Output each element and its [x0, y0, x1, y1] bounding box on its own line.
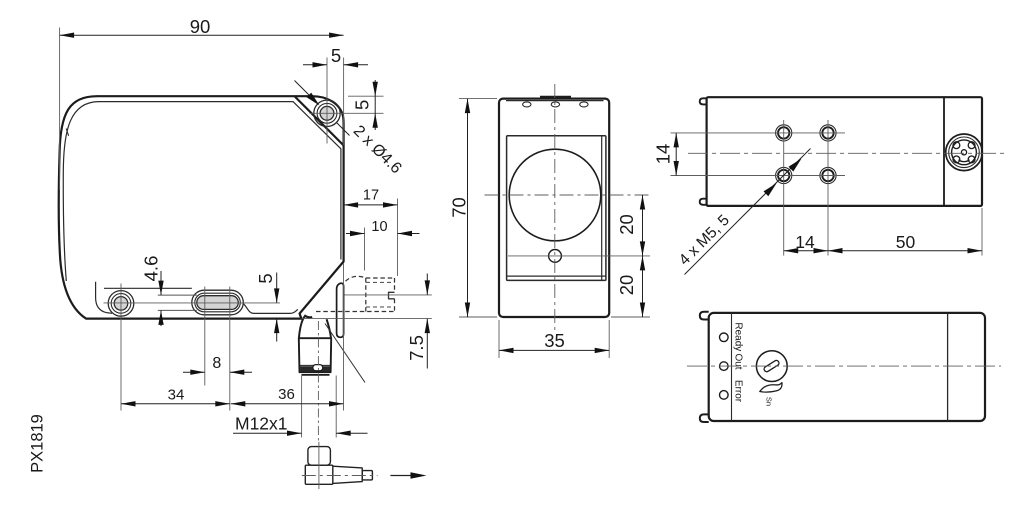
- svg-text:M12x1: M12x1: [235, 414, 288, 434]
- svg-text:36: 36: [278, 386, 295, 403]
- svg-text:Ready: Ready: [733, 322, 744, 351]
- svg-text:PX1819: PX1819: [29, 414, 47, 473]
- svg-text:4.6: 4.6: [141, 256, 162, 282]
- svg-text:Sn: Sn: [765, 397, 774, 406]
- svg-text:10: 10: [371, 219, 387, 235]
- svg-text:90: 90: [190, 16, 211, 37]
- svg-text:70: 70: [449, 197, 470, 218]
- svg-text:17: 17: [363, 188, 379, 204]
- svg-text:Out: Out: [733, 353, 744, 369]
- svg-text:34: 34: [168, 387, 185, 404]
- svg-text:50: 50: [896, 232, 916, 252]
- svg-text:5: 5: [331, 45, 341, 66]
- svg-text:5: 5: [255, 273, 276, 283]
- svg-text:8: 8: [212, 355, 221, 372]
- svg-text:20: 20: [616, 214, 637, 235]
- svg-text:14: 14: [653, 144, 674, 165]
- svg-text:5: 5: [352, 100, 373, 110]
- svg-text:Error: Error: [733, 380, 744, 403]
- svg-text:7.5: 7.5: [406, 335, 427, 361]
- svg-text:35: 35: [544, 330, 565, 351]
- svg-text:20: 20: [616, 275, 637, 296]
- svg-text:14: 14: [795, 232, 815, 252]
